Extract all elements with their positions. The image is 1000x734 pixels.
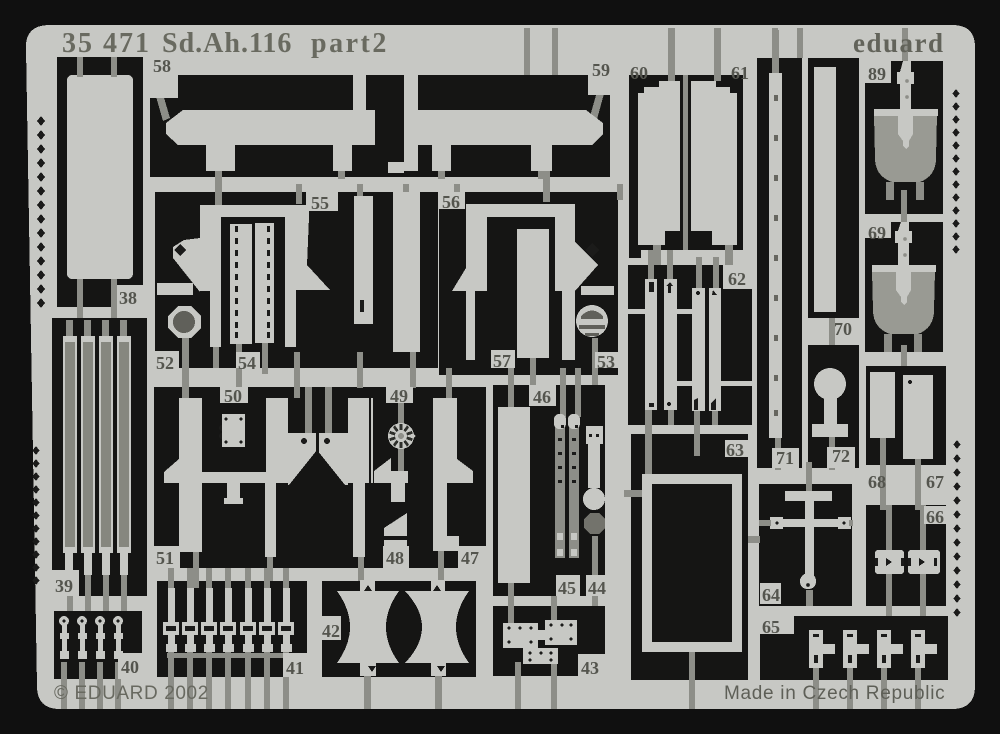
svg-text:46: 46 <box>533 387 551 407</box>
svg-text:66: 66 <box>926 507 944 527</box>
svg-text:52: 52 <box>156 353 174 373</box>
svg-text:60: 60 <box>630 63 648 83</box>
svg-text:67: 67 <box>926 472 944 492</box>
svg-text:© EDUARD 2002: © EDUARD 2002 <box>54 683 209 704</box>
svg-text:63: 63 <box>726 440 744 460</box>
svg-text:69: 69 <box>868 223 886 243</box>
svg-text:71: 71 <box>776 448 794 468</box>
svg-text:61: 61 <box>731 63 749 83</box>
svg-text:50: 50 <box>224 386 242 406</box>
svg-text:eduard: eduard <box>853 28 945 58</box>
svg-text:Made in Czech Republic: Made in Czech Republic <box>724 683 945 704</box>
svg-text:57: 57 <box>493 351 511 371</box>
svg-text:47: 47 <box>461 548 479 568</box>
svg-text:41: 41 <box>286 658 304 678</box>
svg-text:40: 40 <box>121 657 139 677</box>
svg-text:48: 48 <box>386 548 404 568</box>
svg-text:70: 70 <box>834 319 852 339</box>
svg-text:68: 68 <box>868 472 886 492</box>
svg-text:part2: part2 <box>311 28 389 59</box>
svg-text:45: 45 <box>558 578 576 598</box>
svg-text:43: 43 <box>581 658 599 678</box>
svg-text:39: 39 <box>55 576 73 596</box>
svg-text:51: 51 <box>156 548 174 568</box>
svg-text:64: 64 <box>762 585 780 605</box>
svg-text:42: 42 <box>322 621 340 641</box>
svg-text:89: 89 <box>868 64 886 84</box>
svg-text:53: 53 <box>597 352 615 372</box>
svg-text:49: 49 <box>390 386 408 406</box>
svg-text:65: 65 <box>762 617 780 637</box>
svg-text:56: 56 <box>442 192 460 212</box>
svg-text:35 471: 35 471 <box>62 28 151 59</box>
svg-text:Sd.Ah.116: Sd.Ah.116 <box>162 28 292 59</box>
svg-text:59: 59 <box>592 60 610 80</box>
svg-text:55: 55 <box>311 193 329 213</box>
svg-text:44: 44 <box>588 578 606 598</box>
svg-text:38: 38 <box>119 288 137 308</box>
svg-text:72: 72 <box>832 446 850 466</box>
svg-text:58: 58 <box>153 56 171 76</box>
svg-text:54: 54 <box>238 353 256 373</box>
svg-text:62: 62 <box>728 269 746 289</box>
